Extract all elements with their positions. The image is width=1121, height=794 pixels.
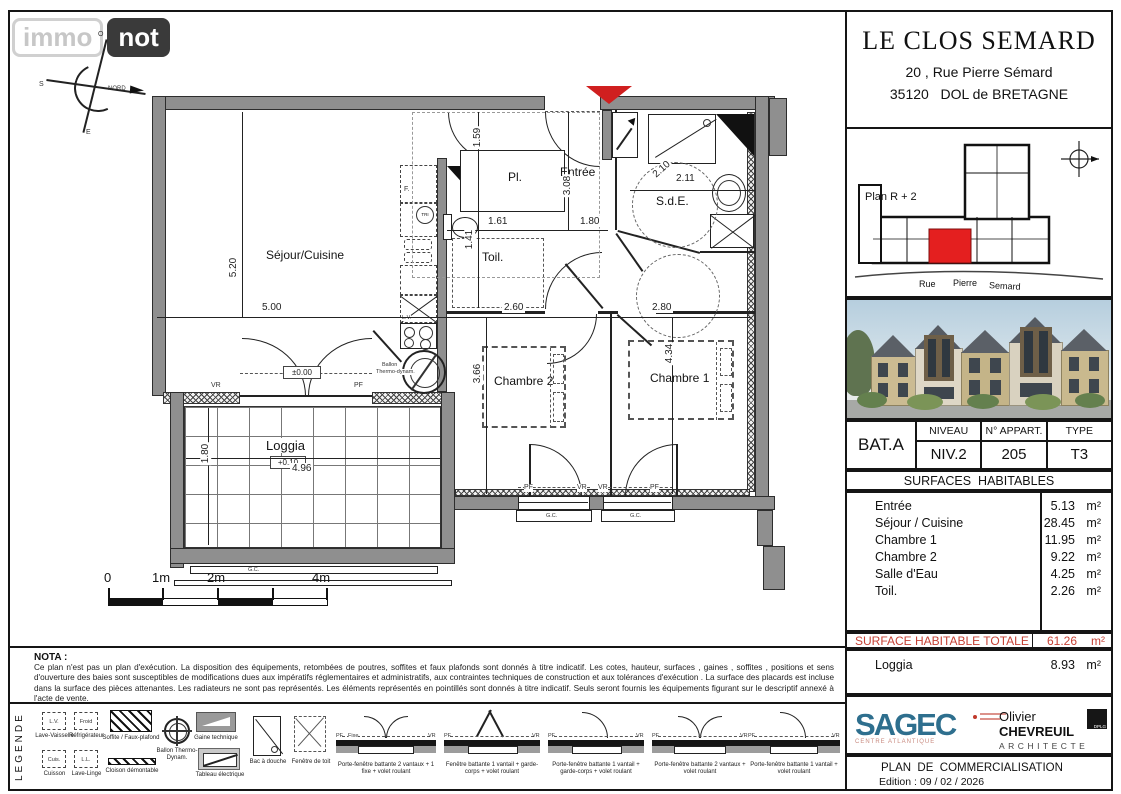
location-map-drawing: [847, 129, 1111, 296]
legend-window-item-5: PF VR Porte-fenêtre battante 1 vantail +…: [748, 708, 840, 788]
nota-block: NOTA : Ce plan n'est pas un plan d'exécu…: [34, 652, 834, 705]
kitchen-dishwasher-label: L.V.: [402, 315, 411, 321]
insulation-right: [747, 112, 755, 492]
ch2-pf-label: PF: [524, 484, 533, 492]
scale-0: 0: [104, 570, 111, 585]
wall-loggia-right: [441, 392, 455, 564]
wall-between-bedrooms: [610, 314, 612, 496]
entrance-arrow: [586, 86, 632, 104]
legend-cuis-box: Cuis.: [42, 750, 66, 768]
legend-title: LEGENDE: [14, 710, 25, 784]
wall-loggia-bottom: [170, 548, 455, 564]
chambre2-bed: [482, 346, 566, 428]
building-cell: BAT.A: [847, 422, 917, 468]
legend-ll-box: L.L.: [74, 750, 98, 768]
dim-ch1-w: 2.80: [650, 302, 673, 313]
architect-title: ARCHITECTE: [999, 741, 1111, 751]
compass-e-label: E: [86, 130, 91, 136]
title-block: LE CLOS SEMARD 20 , Rue Pierre Sémard 35…: [845, 10, 1113, 129]
appart-value: 205: [982, 442, 1047, 468]
architect-logo: Olivier CHEVREUIL ARCHITECTE DPLG: [999, 709, 1111, 751]
surface-row: Chambre 29.22m²: [847, 549, 1111, 566]
legend-soffite-swatch: [110, 710, 152, 732]
apartment-table: BAT.A NIVEAU N° APPART. TYPE NIV.2 205 T…: [845, 420, 1113, 470]
loggia-area: 8.93: [1031, 657, 1075, 674]
dim-entree-h: 3.08: [562, 174, 573, 197]
dim-pl-w: 1.61: [486, 216, 509, 227]
compass-o-label: O: [98, 32, 103, 38]
type-value: T3: [1048, 442, 1111, 468]
nota-title: NOTA :: [34, 652, 834, 663]
compass-north-arrow: [130, 86, 145, 95]
wall-loggia-left: [170, 392, 184, 568]
dim-loggia-h: 1.80: [200, 442, 211, 465]
chambre1-window-leaf: [676, 444, 678, 496]
location-map: Plan R + 2 Rue Pierre Semard: [845, 127, 1113, 298]
level-zero-box: ±0.00: [283, 366, 321, 379]
legend-window-item-4: PF VR Porte-fenêtre battante 2 vantaux +…: [652, 708, 748, 788]
surface-total-row: SURFACE HABITABLE TOTALE 61.26 m²: [845, 632, 1113, 649]
logos-row: SAGEC CENTRE ATLANTIQUE Olivier CHEVREUI…: [845, 695, 1113, 755]
chambre2-window: [518, 496, 590, 510]
chambre2-sill-gc: G.C.: [546, 513, 557, 519]
dim-pl-h: 1.59: [472, 126, 483, 149]
wall-right-stub-bottom: [757, 510, 773, 546]
loggia-floor-grid: [184, 406, 441, 548]
facade-vr-label: VR: [211, 382, 221, 390]
surface-row: Chambre 111.95m²: [847, 532, 1111, 549]
wall-right-stub-top: [769, 98, 787, 156]
architect-badge: DPLG: [1087, 709, 1107, 729]
map-street-semard: Semard: [989, 280, 1021, 292]
loggia-row: Loggia 8.93 m²: [845, 649, 1113, 695]
dim-line-sejour-v: [242, 112, 243, 317]
sagec-logo: SAGEC CENTRE ATLANTIQUE: [855, 707, 955, 745]
legend-tableau-label: Tableau électrique: [192, 772, 248, 779]
dim-line-loggia-h: [186, 458, 440, 459]
surface-row: Entrée5.13m²: [847, 498, 1111, 515]
chambre1-window-dash: [603, 487, 673, 488]
compass-rose: O S E NORD: [48, 42, 148, 132]
project-title: LE CLOS SEMARD: [847, 26, 1111, 56]
hall-turning-circle: [636, 254, 720, 338]
commercial-floor-plan-sheet: immonot O S E NORD G.C.: [0, 0, 1121, 794]
shower-tray: [648, 114, 716, 164]
legend-soffite-label: Soffite / Faux-plafond: [100, 735, 162, 742]
project-address-1: 20 , Rue Pierre Sémard: [847, 64, 1111, 80]
surface-total-unit: m²: [1077, 634, 1111, 648]
location-map-level-label: Plan R + 2: [865, 191, 917, 203]
ch1-pf-label: PF: [650, 484, 659, 492]
surface-row: Toil.2.26m²: [847, 583, 1111, 600]
legend-window-label-1: Porte-fenêtre battante 2 vantaux + 1 fix…: [336, 762, 436, 776]
electrical-panel: [612, 112, 638, 158]
ballon-label-2: Thermo-dynam.: [376, 369, 415, 375]
legend-window-label-2: Fenêtre battante 1 vantail + garde-corps…: [442, 762, 542, 776]
surfaces-header: SURFACES HABITABLES: [845, 470, 1113, 491]
surface-row: Séjour / Cuisine28.45m²: [847, 515, 1111, 532]
legend-gaine-label: Gaine technique: [190, 735, 242, 742]
legend-froid-box: Froid: [74, 712, 98, 730]
building-photo: [845, 298, 1113, 420]
loggia-unit: m²: [1075, 657, 1101, 674]
dim-line-loggia-v: [208, 408, 209, 545]
legend-fenetre-toit-label: Fenêtre de toit: [288, 759, 334, 766]
dim-loggia-w: 4.96: [290, 463, 313, 474]
scale-1m: 1m: [152, 570, 170, 585]
legend-window-item-1: PF Fixe VR Porte-fenêtre battante 2 vant…: [336, 708, 436, 788]
scale-2m: 2m: [207, 570, 225, 585]
wall-hall-bedrooms-1: [447, 311, 545, 314]
ballon-label-1: Ballon: [382, 362, 397, 368]
scale-bar: 0 1m 2m 4m: [100, 570, 360, 610]
surface-row: Salle d'Eau4.25m²: [847, 566, 1111, 583]
scale-4m: 4m: [312, 570, 330, 585]
sejour-label: Séjour/Cuisine: [266, 248, 344, 262]
dim-line-entree-v: [568, 112, 569, 230]
dim-ch2-w: 2.60: [502, 302, 525, 313]
wall-top-left: [152, 96, 545, 110]
niveau-header: NIVEAU: [917, 422, 982, 440]
wall-right-stub-lower: [763, 546, 785, 590]
surface-total-label: SURFACE HABITABLE TOTALE: [847, 634, 1032, 648]
wall-sde-bottom: [700, 251, 755, 253]
kitchen-fridge-label: F.: [404, 186, 409, 194]
legend-window-item-2: PF VR Fenêtre battante 1 vantail + garde…: [444, 708, 540, 788]
wall-hall-bedrooms-2: [598, 311, 618, 314]
legend-lv-box: L.V.: [42, 712, 66, 730]
dim-entree-w: 1.80: [578, 216, 601, 227]
dim-sejour-h: 5.20: [228, 256, 239, 279]
ch1-vr-label: VR: [598, 484, 608, 492]
dim-line-sde: [630, 190, 755, 191]
compass-north-label: NORD: [108, 86, 126, 92]
legend-douche-label: Bac à douche: [244, 759, 292, 766]
legend-tableau-swatch: [198, 748, 240, 770]
kitchen-cooktop: [400, 323, 437, 349]
sde-washer-slot: [710, 214, 754, 248]
loggia-name: Loggia: [875, 657, 1031, 674]
dim-ch1-h: 4.34: [664, 342, 675, 365]
legend-window-label-4: Porte-fenêtre battante 2 vantaux + volet…: [650, 762, 750, 776]
loggia-door-threshold: [240, 395, 372, 397]
legend-window-label-3: Porte-fenêtre battante 1 vantail + garde…: [546, 762, 646, 776]
doc-title: PLAN DE COMMERCIALISATION: [881, 762, 1111, 774]
dim-sde-w: 2.11: [674, 173, 697, 184]
legend-ballon-swatch: [164, 718, 190, 744]
wall-left: [152, 96, 166, 396]
dim-sejour-w: 5.00: [260, 302, 283, 313]
legend-window-item-3: PF VR Porte-fenêtre battante 1 vantail +…: [548, 708, 644, 788]
legend-douche-swatch: [253, 716, 281, 756]
dim-line-horizontal-main: [157, 317, 750, 318]
dim-toil-h: 1.41: [464, 228, 475, 251]
surfaces-list: Entrée5.13m² Séjour / Cuisine28.45m² Cha…: [845, 491, 1113, 632]
dim-line-ch2-v: [486, 318, 487, 494]
chambre1-sill-gc: G.C.: [630, 513, 641, 519]
dim-ch2-h: 3.66: [472, 362, 483, 385]
legend-cloison-label: Cloison démontable: [100, 768, 164, 775]
project-address-2: 35120 DOL de BRETAGNE: [847, 86, 1111, 102]
doc-footer: PLAN DE COMMERCIALISATION Edition : 09 /…: [845, 755, 1113, 791]
wall-right: [755, 96, 769, 510]
nota-text: Ce plan n'est pas un plan d'exécution. L…: [34, 663, 834, 705]
entrance-duct: [602, 110, 612, 160]
legend-fenetre-toit-swatch: [294, 716, 326, 752]
legend-gaine-swatch: [196, 712, 236, 732]
appart-header: N° APPART.: [982, 422, 1047, 440]
legend-window-label-5: Porte-fenêtre battante 1 vantail + volet…: [744, 762, 844, 776]
sde-label: S.d.E.: [656, 194, 689, 208]
loggia-label: Loggia: [264, 438, 307, 453]
map-street-rue: Rue: [919, 279, 936, 289]
surface-total-area: 61.26: [1032, 634, 1077, 647]
doc-edition: Edition : 09 / 02 / 2026: [879, 776, 1111, 788]
compass-s-label: S: [39, 82, 44, 88]
facade-pf-label: PF: [354, 382, 363, 390]
niveau-value: NIV.2: [917, 442, 982, 468]
chambre1-window: [603, 496, 673, 510]
ch2-vr-label: VR: [577, 484, 587, 492]
chambre1-bed: [628, 340, 734, 420]
type-header: TYPE: [1048, 422, 1111, 440]
map-street-pierre: Pierre: [953, 278, 977, 288]
